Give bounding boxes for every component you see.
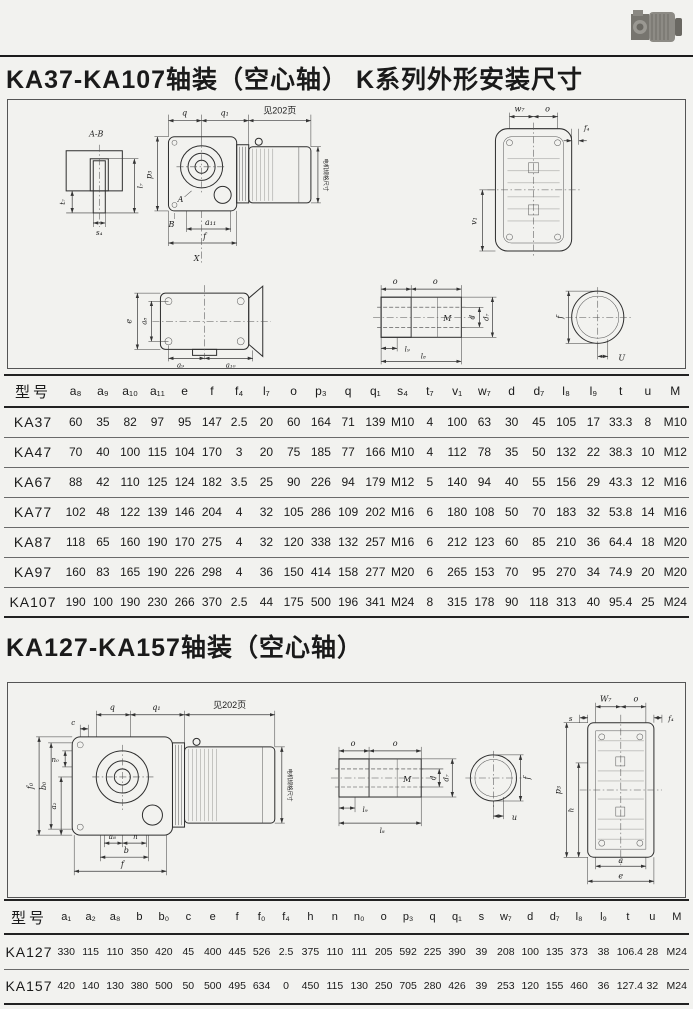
value-cell: 74.9: [607, 557, 634, 587]
dim2-n0: n₀: [51, 755, 59, 764]
value-cell: M24: [389, 587, 416, 617]
value-cell: 77: [335, 437, 362, 467]
value-cell: 105: [553, 407, 580, 437]
table-row: KA127330115110350420454004455262.5375110…: [4, 934, 689, 969]
value-cell: 63: [471, 407, 498, 437]
table-row: KA9716083165190226298436150414158277M206…: [4, 557, 689, 587]
dimension-drawing-2: q q₁ 见202页 c n₀ f₀ b₀: [8, 683, 685, 897]
value-cell: 460: [567, 969, 591, 1004]
label-x: X: [193, 254, 200, 263]
value-cell: 350: [127, 934, 151, 969]
value-cell: 370: [198, 587, 225, 617]
value-cell: 95: [525, 557, 552, 587]
value-cell: 28: [640, 934, 664, 969]
motor-size-note: 电机规格尺寸: [322, 158, 330, 192]
column-header-dimension: d: [498, 375, 525, 407]
value-cell: 250: [371, 969, 395, 1004]
value-cell: M16: [662, 467, 690, 497]
value-cell: 705: [396, 969, 420, 1004]
motor-size-note-2: 电机规格尺寸: [286, 768, 294, 802]
value-cell: 592: [396, 934, 420, 969]
value-cell: 100: [89, 587, 116, 617]
value-cell: M20: [662, 557, 690, 587]
column-header-dimension: M: [662, 375, 690, 407]
column-header-dimension: a₁: [54, 900, 78, 934]
dim2-s: s: [569, 714, 573, 723]
value-cell: 495: [225, 969, 249, 1004]
value-cell: 5: [416, 467, 443, 497]
value-cell: 32: [253, 497, 280, 527]
dim-d: d: [467, 314, 476, 319]
model-cell: KA107: [4, 587, 62, 617]
dim-a11: a₁₁: [205, 218, 216, 227]
column-header-dimension: M: [665, 900, 689, 934]
value-cell: 95.4: [607, 587, 634, 617]
column-header-dimension: w₇: [494, 900, 518, 934]
value-cell: 298: [198, 557, 225, 587]
value-cell: 20: [253, 437, 280, 467]
value-cell: 6: [416, 497, 443, 527]
value-cell: 94: [335, 467, 362, 497]
value-cell: 139: [362, 407, 389, 437]
table-row: KA8711865160190170275432120338132257M166…: [4, 527, 689, 557]
value-cell: 48: [89, 497, 116, 527]
dim-t7: t₇: [58, 199, 67, 205]
value-cell: 225: [420, 934, 444, 969]
dimension-table-ka37-ka107: 型号a₈a₉a₁₀a₁₁eff₄l₇op₃qq₁s₄t₇v₁w₇dd₇l₈l₉t…: [4, 374, 689, 618]
value-cell: 106.4: [616, 934, 640, 969]
value-cell: 115: [144, 437, 171, 467]
value-cell: 10: [634, 437, 661, 467]
table-row: KA4770401001151041703207518577166M104112…: [4, 437, 689, 467]
value-cell: 140: [444, 467, 471, 497]
dim2-e: e: [618, 871, 623, 880]
column-header-dimension: h: [298, 900, 322, 934]
value-cell: 208: [494, 934, 518, 969]
table-row: KA3760358297951472.5206016471139M1041006…: [4, 407, 689, 437]
value-cell: 40: [89, 437, 116, 467]
model-cell: KA67: [4, 467, 62, 497]
header-row: 型号a₁a₂a₈bb₀ceff₀f₄hnn₀op₃qq₁sw₇dd₇l₈l₉tu…: [4, 900, 689, 934]
dim-f: f: [202, 232, 208, 241]
dim-q: q: [182, 109, 187, 118]
dim-w7: w₇: [514, 105, 525, 114]
value-cell: 4: [226, 527, 253, 557]
value-cell: 90: [498, 587, 525, 617]
value-cell: 29: [580, 467, 607, 497]
value-cell: 6: [416, 557, 443, 587]
section-label: A-B: [88, 130, 103, 139]
column-header-dimension: q: [335, 375, 362, 407]
dim-l7: l₇: [135, 183, 144, 188]
section2-title: KA127-KA157轴装（空心轴）: [6, 628, 363, 664]
value-cell: 38.3: [607, 437, 634, 467]
value-cell: 420: [152, 934, 176, 969]
dim2-o3: o: [633, 695, 638, 704]
value-cell: 3.5: [226, 467, 253, 497]
value-cell: 270: [553, 557, 580, 587]
dim2-b: b: [124, 846, 129, 855]
column-header-dimension: p₃: [396, 900, 420, 934]
value-cell: 132: [553, 437, 580, 467]
column-header-dimension: u: [640, 900, 664, 934]
value-cell: 39: [469, 969, 493, 1004]
value-cell: 118: [525, 587, 552, 617]
value-cell: 286: [307, 497, 334, 527]
value-cell: 100: [117, 437, 144, 467]
dim-a9: a₉: [177, 360, 184, 368]
dim-o: o: [393, 277, 398, 286]
value-cell: 212: [444, 527, 471, 557]
dim2-a: a: [618, 856, 623, 865]
header-row: 型号a₈a₉a₁₀a₁₁eff₄l₇op₃qq₁s₄t₇v₁w₇dd₇l₈l₉t…: [4, 375, 689, 407]
dim2-d: d: [428, 775, 437, 780]
value-cell: 78: [471, 437, 498, 467]
value-cell: M16: [662, 497, 690, 527]
value-cell: 65: [89, 527, 116, 557]
dim2-a2: a₂: [49, 802, 58, 809]
value-cell: M24: [665, 969, 689, 1004]
value-cell: 146: [171, 497, 198, 527]
value-cell: 38: [591, 934, 615, 969]
value-cell: 53.8: [607, 497, 634, 527]
drawing-panel-ka37-ka107: A-B t₇ l₇ s₄: [7, 99, 686, 369]
model-cell: KA77: [4, 497, 62, 527]
value-cell: 14: [634, 497, 661, 527]
value-cell: 182: [198, 467, 225, 497]
front-view-2: q q₁ 见202页 c n₀ f₀ b₀: [26, 700, 294, 875]
table-row: KA1071901001902302663702.544175500196341…: [4, 587, 689, 617]
value-cell: 160: [62, 557, 89, 587]
value-cell: 380: [127, 969, 151, 1004]
column-header-dimension: s: [469, 900, 493, 934]
value-cell: M12: [389, 467, 416, 497]
value-cell: 20: [253, 407, 280, 437]
table1-wrap: 型号a₈a₉a₁₀a₁₁eff₄l₇op₃qq₁s₄t₇v₁w₇dd₇l₈l₉t…: [4, 374, 689, 618]
value-cell: 64.4: [607, 527, 634, 557]
value-cell: 4: [416, 437, 443, 467]
value-cell: 32: [580, 497, 607, 527]
column-header-dimension: d₇: [525, 375, 552, 407]
section1-title: KA37-KA107轴装（空心轴） K系列外形安装尺寸: [6, 60, 583, 96]
value-cell: 25: [634, 587, 661, 617]
value-cell: 205: [371, 934, 395, 969]
dim-u-cap: U: [618, 353, 625, 362]
value-cell: 450: [298, 969, 322, 1004]
value-cell: 2.5: [274, 934, 298, 969]
column-header-dimension: b: [127, 900, 151, 934]
value-cell: 135: [542, 934, 566, 969]
table-row: KA6788421101251241823.5259022694179M1251…: [4, 467, 689, 497]
value-cell: 166: [362, 437, 389, 467]
value-cell: 34: [580, 557, 607, 587]
column-header-dimension: u: [634, 375, 661, 407]
value-cell: 60: [280, 407, 307, 437]
dim2-d7: d₇: [441, 774, 450, 781]
column-header-dimension: d: [518, 900, 542, 934]
value-cell: 400: [201, 934, 225, 969]
value-cell: 36: [580, 527, 607, 557]
value-cell: 130: [103, 969, 127, 1004]
model-cell: KA47: [4, 437, 62, 467]
value-cell: 373: [567, 934, 591, 969]
value-cell: 265: [444, 557, 471, 587]
value-cell: 183: [553, 497, 580, 527]
dim-m: M: [442, 314, 452, 323]
column-header-dimension: w₇: [471, 375, 498, 407]
drawing-panel-ka127-ka157: q q₁ 见202页 c n₀ f₀ b₀: [7, 682, 686, 898]
column-header-dimension: a₁₁: [144, 375, 171, 407]
value-cell: 526: [249, 934, 273, 969]
dim2-c: c: [71, 718, 75, 727]
dim-l8: l₈: [421, 351, 426, 360]
value-cell: 36: [591, 969, 615, 1004]
value-cell: 280: [420, 969, 444, 1004]
value-cell: 4: [416, 407, 443, 437]
dim-s4: s₄: [96, 228, 103, 237]
value-cell: 155: [542, 969, 566, 1004]
column-header-dimension: p₃: [307, 375, 334, 407]
value-cell: 102: [62, 497, 89, 527]
model-cell: KA157: [4, 969, 54, 1004]
column-header-dimension: l₉: [591, 900, 615, 934]
value-cell: 104: [171, 437, 198, 467]
value-cell: 22: [580, 437, 607, 467]
value-cell: 25: [253, 467, 280, 497]
value-cell: 226: [307, 467, 334, 497]
value-cell: 226: [171, 557, 198, 587]
value-cell: 153: [471, 557, 498, 587]
dim2-q: q: [110, 703, 115, 712]
dim2-n: n: [133, 832, 138, 841]
column-header-dimension: b₀: [152, 900, 176, 934]
value-cell: 125: [144, 467, 171, 497]
value-cell: 266: [171, 587, 198, 617]
front-view: p₃ A: [144, 106, 330, 265]
column-header-dimension: l₉: [580, 375, 607, 407]
value-cell: 202: [362, 497, 389, 527]
value-cell: 32: [640, 969, 664, 1004]
value-cell: 111: [347, 934, 371, 969]
dim2-p3: p₃: [554, 786, 563, 794]
value-cell: 257: [362, 527, 389, 557]
model-cell: KA97: [4, 557, 62, 587]
value-cell: 4: [226, 497, 253, 527]
value-cell: 115: [323, 969, 347, 1004]
dim2-u: u: [512, 813, 517, 822]
value-cell: M24: [665, 934, 689, 969]
value-cell: 147: [198, 407, 225, 437]
column-header-dimension: t₇: [416, 375, 443, 407]
value-cell: 2.5: [226, 587, 253, 617]
value-cell: 120: [518, 969, 542, 1004]
value-cell: 2.5: [226, 407, 253, 437]
value-cell: 500: [201, 969, 225, 1004]
value-cell: 253: [494, 969, 518, 1004]
value-cell: 3: [226, 437, 253, 467]
value-cell: 160: [117, 527, 144, 557]
value-cell: 127.4: [616, 969, 640, 1004]
column-header-dimension: a₈: [62, 375, 89, 407]
value-cell: 20: [634, 557, 661, 587]
value-cell: 123: [471, 527, 498, 557]
dim-l9: l₉: [405, 344, 410, 353]
value-cell: 634: [249, 969, 273, 1004]
value-cell: 156: [553, 467, 580, 497]
value-cell: 178: [471, 587, 498, 617]
value-cell: M24: [662, 587, 690, 617]
value-cell: 12: [634, 467, 661, 497]
dim2-f-circle: f: [523, 774, 532, 780]
value-cell: 55: [525, 467, 552, 497]
value-cell: 85: [525, 527, 552, 557]
dim-f-circle: f: [556, 314, 565, 320]
value-cell: 109: [335, 497, 362, 527]
column-header-dimension: q: [420, 900, 444, 934]
model-cell: KA87: [4, 527, 62, 557]
value-cell: 45: [176, 934, 200, 969]
value-cell: 70: [62, 437, 89, 467]
dim-a8: a₈: [139, 318, 148, 325]
column-header-dimension: o: [280, 375, 307, 407]
column-header-dimension: t: [607, 375, 634, 407]
gearmotor-photo-icon: [629, 4, 685, 48]
column-header-dimension: f₀: [249, 900, 273, 934]
value-cell: 8: [416, 587, 443, 617]
value-cell: 338: [307, 527, 334, 557]
rear-view: W₇ o s f₄ p₃ h a: [554, 695, 674, 885]
column-header-dimension: a₂: [78, 900, 102, 934]
column-header-dimension: o: [371, 900, 395, 934]
value-cell: 30: [498, 407, 525, 437]
column-header-dimension: f: [198, 375, 225, 407]
see-page-note: 见202页: [263, 106, 296, 116]
value-cell: 44: [253, 587, 280, 617]
header-divider: [0, 55, 693, 57]
value-cell: M20: [662, 527, 690, 557]
value-cell: 170: [198, 437, 225, 467]
value-cell: 375: [298, 934, 322, 969]
column-header-dimension: a₈: [103, 900, 127, 934]
value-cell: 108: [471, 497, 498, 527]
value-cell: 112: [444, 437, 471, 467]
column-header-dimension: f: [225, 900, 249, 934]
column-header-dimension: v₁: [444, 375, 471, 407]
value-cell: 165: [117, 557, 144, 587]
value-cell: 170: [171, 527, 198, 557]
value-cell: M10: [662, 407, 690, 437]
column-header-dimension: q₁: [445, 900, 469, 934]
value-cell: M16: [389, 497, 416, 527]
value-cell: 118: [62, 527, 89, 557]
hollow-shaft-view: M o o d d₇ l₉: [373, 277, 496, 364]
dim-o-top: o: [545, 105, 550, 114]
value-cell: 70: [498, 557, 525, 587]
shaft-end-view-2: f u: [465, 751, 531, 822]
dim2-q1: q₁: [152, 703, 160, 712]
value-cell: 124: [171, 467, 198, 497]
dim-d7: d₇: [481, 313, 490, 320]
value-cell: M12: [662, 437, 690, 467]
dimension-drawing-1: A-B t₇ l₇ s₄: [8, 100, 685, 368]
column-header-dimension: l₈: [553, 375, 580, 407]
value-cell: 4: [226, 557, 253, 587]
value-cell: M10: [389, 437, 416, 467]
value-cell: 100: [518, 934, 542, 969]
column-header-dimension: t: [616, 900, 640, 934]
value-cell: 420: [54, 969, 78, 1004]
dim2-o2: o: [393, 739, 398, 748]
value-cell: 94: [471, 467, 498, 497]
value-cell: 190: [62, 587, 89, 617]
value-cell: 82: [117, 407, 144, 437]
value-cell: 35: [89, 407, 116, 437]
value-cell: 42: [89, 467, 116, 497]
value-cell: 17: [580, 407, 607, 437]
column-header-dimension: d₇: [542, 900, 566, 934]
value-cell: 70: [525, 497, 552, 527]
value-cell: 97: [144, 407, 171, 437]
value-cell: 150: [280, 557, 307, 587]
column-header-dimension: a₉: [89, 375, 116, 407]
value-cell: 190: [117, 587, 144, 617]
shaft-end-view: f U: [556, 287, 632, 362]
value-cell: 158: [335, 557, 362, 587]
top-view: w₇ o f₄ v₁: [469, 105, 589, 257]
column-header-dimension: e: [171, 375, 198, 407]
value-cell: 32: [253, 527, 280, 557]
value-cell: 196: [335, 587, 362, 617]
column-header-dimension: l₈: [567, 900, 591, 934]
value-cell: 8: [634, 407, 661, 437]
value-cell: 88: [62, 467, 89, 497]
value-cell: 330: [54, 934, 78, 969]
column-header-dimension: l₇: [253, 375, 280, 407]
value-cell: 50: [176, 969, 200, 1004]
value-cell: 277: [362, 557, 389, 587]
table-row: KA7710248122139146204432105286109202M166…: [4, 497, 689, 527]
dimension-table-ka127-ka157: 型号a₁a₂a₈bb₀ceff₀f₄hnn₀op₃qq₁sw₇dd₇l₈l₉tu…: [4, 899, 689, 1005]
value-cell: M10: [389, 407, 416, 437]
value-cell: 426: [445, 969, 469, 1004]
value-cell: 315: [444, 587, 471, 617]
dim2-a8: a₈: [109, 832, 116, 841]
value-cell: 130: [347, 969, 371, 1004]
value-cell: 210: [553, 527, 580, 557]
value-cell: M20: [389, 557, 416, 587]
value-cell: 75: [280, 437, 307, 467]
dim-o2: o: [433, 277, 438, 286]
table2-wrap: 型号a₁a₂a₈bb₀ceff₀f₄hnn₀op₃qq₁sw₇dd₇l₈l₉tu…: [4, 899, 689, 1005]
value-cell: 190: [144, 527, 171, 557]
value-cell: 60: [62, 407, 89, 437]
model-cell: KA127: [4, 934, 54, 969]
value-cell: 71: [335, 407, 362, 437]
value-cell: 18: [634, 527, 661, 557]
value-cell: M16: [389, 527, 416, 557]
column-header-dimension: q₁: [362, 375, 389, 407]
value-cell: 185: [307, 437, 334, 467]
dim-q1: q₁: [220, 109, 228, 118]
value-cell: 39: [469, 934, 493, 969]
column-header-dimension: n: [323, 900, 347, 934]
column-header-dimension: a₁₀: [117, 375, 144, 407]
value-cell: 100: [444, 407, 471, 437]
column-header-dimension: e: [201, 900, 225, 934]
table-row: KA15742014013038050050500495634045011513…: [4, 969, 689, 1004]
column-header-dimension: f₄: [274, 900, 298, 934]
value-cell: 83: [89, 557, 116, 587]
